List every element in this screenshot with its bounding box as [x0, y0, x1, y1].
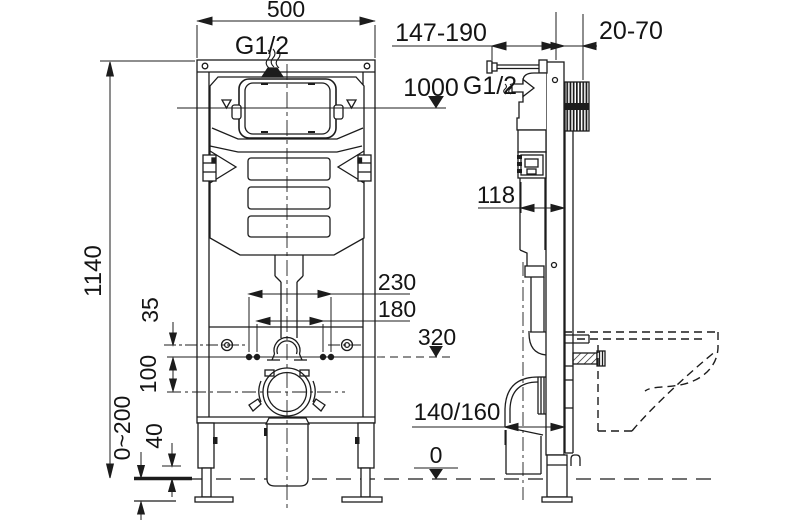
label-drain-depth: 140/160: [414, 399, 501, 426]
leg-lock-screw-right: [355, 437, 360, 444]
rod-mount-block: [539, 60, 547, 73]
leg-rod-left: [202, 468, 211, 497]
front-view: [195, 49, 382, 502]
label-bolt-inner: 180: [378, 296, 416, 322]
pan-bracket: [564, 335, 589, 408]
label-leg-clearance: 40: [141, 423, 167, 449]
label-frame-height: 1140: [80, 245, 107, 297]
label-inlet-side: G1/2: [463, 72, 517, 100]
dim-0-200: [138, 452, 145, 520]
label-hole-to-drain: 100: [135, 355, 161, 393]
adjustable-leg-left: [195, 423, 233, 502]
dim-100: [170, 358, 177, 391]
label-floor-zero: 0: [430, 442, 443, 468]
toilet-bowl-outline: [564, 332, 718, 431]
leg-tube-left: [198, 423, 214, 468]
foot-notch: [571, 455, 580, 466]
leg-lock-screw-left: [213, 437, 218, 444]
foot-plate-left: [195, 497, 233, 502]
leg-tube-right: [358, 423, 374, 468]
label-wall-gap: 20-70: [599, 17, 663, 45]
side-foot: [542, 455, 580, 502]
dim-35: [170, 322, 177, 345]
side-view: [487, 60, 718, 502]
label-outlet-height: 320: [418, 324, 456, 350]
foot-plate-right: [342, 497, 382, 502]
wall-bracket-block: [565, 82, 589, 131]
flush-valve-unit: [517, 152, 546, 178]
tank-profile: [518, 130, 546, 152]
panel-tab-right: [334, 105, 343, 119]
access-panel-outer: [239, 79, 336, 138]
drawing-canvas: 500 G1/2 147-190 20-70 1000 G1/2 118 114…: [0, 0, 810, 528]
label-bolt-outer: 230: [378, 269, 416, 295]
level-marker-0: [414, 468, 458, 479]
cistern-lid-profile: [517, 73, 546, 130]
label-hole-offset: 35: [137, 297, 163, 323]
frame-rail-profile: [546, 62, 564, 455]
mounting-stud: [573, 351, 605, 366]
label-inlet-front: G1/2: [235, 32, 289, 60]
leg-rod-right: [361, 468, 370, 497]
wall-rail: [565, 131, 573, 453]
dim-40: [162, 443, 181, 497]
installation-drawing: 500 G1/2 147-190 20-70 1000 G1/2 118 114…: [0, 0, 810, 528]
cistern-profile: [517, 73, 546, 355]
label-supply-height: 1000: [403, 74, 459, 102]
label-actuator-depth: 118: [477, 182, 515, 209]
drain-outlet-cup: [264, 418, 309, 486]
label-width-500: 500: [267, 0, 305, 22]
adjustable-leg-right: [342, 423, 382, 502]
panel-tab-left: [232, 105, 241, 119]
label-foot-adjust: 0~200: [109, 396, 135, 461]
label-depth-range: 147-190: [395, 19, 487, 47]
